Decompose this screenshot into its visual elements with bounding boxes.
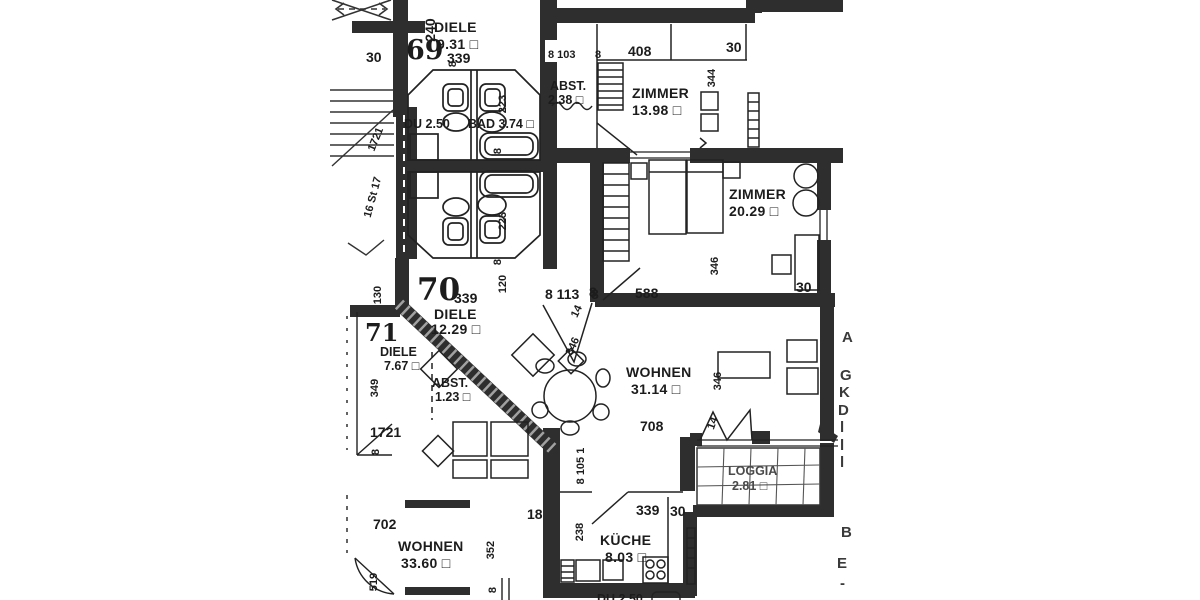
chair-icon <box>593 404 609 420</box>
dim: 519 <box>368 573 380 591</box>
chair-icon <box>422 435 453 466</box>
chair-icon <box>794 164 818 188</box>
edge-fragment: l <box>840 419 844 436</box>
room-area-wohnen70: 31.14 □ <box>631 381 681 397</box>
room-label-abst-top: ABST. <box>550 79 586 93</box>
table-icon <box>453 422 487 456</box>
edge-fragment: B <box>841 524 852 541</box>
sink-icon <box>443 198 469 216</box>
dim: 18 <box>527 506 543 522</box>
table-icon <box>718 352 770 378</box>
chair-icon <box>772 255 791 274</box>
room-label-diele71: DIELE <box>380 345 417 359</box>
room-area-diele71: 7.67 □ <box>384 359 420 373</box>
dim: 346 <box>712 372 724 390</box>
room-label-du69: DU 2.50 <box>404 117 450 131</box>
floorplan-page: DIELE 9.31 □ 69 339 30 240 8 DU 2.50 BAD… <box>0 0 1200 600</box>
dim: 14 <box>705 415 721 431</box>
stool-icon <box>701 92 718 110</box>
dim: 702 <box>373 516 397 532</box>
chair-icon <box>793 190 819 216</box>
dim: 339 <box>636 502 660 518</box>
room-area-diele70: 12.29 □ <box>431 321 481 337</box>
zimmer-20 <box>603 160 819 300</box>
room-label-wohnen70: WOHNEN <box>626 364 692 380</box>
chair-icon <box>453 460 487 478</box>
dim: 30 <box>670 503 686 519</box>
dim: 1721 <box>366 126 386 153</box>
room-label-zimmer2: ZIMMER <box>729 186 786 202</box>
dim: 8 <box>595 49 601 61</box>
dim: 349 <box>369 379 381 397</box>
dim: 8 <box>447 61 459 67</box>
sofa-icon <box>787 368 818 394</box>
elevator-shaft <box>332 0 391 20</box>
door-swing <box>592 492 628 524</box>
room-label-wohnen-lower: WOHNEN <box>398 538 464 554</box>
edge-fragment: E <box>837 555 847 572</box>
wall-openings <box>545 40 831 240</box>
dim: 223 <box>497 212 509 230</box>
edge-fragment: l <box>840 454 844 471</box>
dim: 352 <box>485 541 497 559</box>
edge-fragment: l <box>840 437 844 454</box>
round-table-icon <box>544 370 596 422</box>
dim: 14 <box>569 303 585 320</box>
dim: 8 105 1 <box>575 448 587 485</box>
room-label-kueche: KÜCHE <box>600 532 651 548</box>
chair-icon <box>596 369 610 387</box>
edge-fragment: K <box>839 384 850 401</box>
dim: 223 <box>497 95 509 113</box>
table-icon <box>512 334 554 376</box>
dim: 130 <box>372 286 384 304</box>
staircase <box>330 90 404 255</box>
dim: 408 <box>628 43 652 59</box>
nightstand-icon <box>723 162 740 178</box>
dim: 1721 <box>370 424 401 440</box>
dim: 346 <box>564 336 583 358</box>
chair-icon <box>561 421 579 435</box>
dim: 120 <box>497 275 509 293</box>
edge-fragment: G <box>840 367 852 384</box>
edge-fragment: D <box>838 402 849 419</box>
dim: 30 <box>366 49 382 65</box>
dim: 30 <box>796 279 812 295</box>
unit-number-71: 71 <box>365 318 398 347</box>
edge-fragment: - <box>840 575 845 592</box>
dim: 8 103 <box>548 49 576 61</box>
dim: 8 <box>487 587 499 593</box>
room-area-kueche: 8.03 □ <box>605 549 647 565</box>
toilet-icon <box>443 84 468 111</box>
room-area-abst71: 1.23 □ <box>435 390 471 404</box>
dim: 8 113 <box>545 286 579 302</box>
room-label-zimmer1: ZIMMER <box>632 85 689 101</box>
room-label-abst71: ABST. <box>432 376 468 390</box>
room-area-zimmer2: 20.29 □ <box>729 203 779 219</box>
bathroom-69 <box>408 70 540 160</box>
dim: 588 <box>635 285 659 301</box>
dim: 708 <box>640 418 664 434</box>
bottom-clipped-label: DU 2.50 <box>597 592 643 600</box>
dim: 238 <box>574 523 586 541</box>
room-area-wohnen-lower: 33.60 □ <box>401 555 451 571</box>
bed-icon <box>649 160 686 234</box>
sofa-icon <box>787 340 817 362</box>
room-label-bad69: BAD 3.74 □ <box>468 117 534 131</box>
room-label-diele69: DIELE <box>434 19 477 35</box>
dim: 8 <box>370 449 382 455</box>
dim: 344 <box>706 68 718 87</box>
room-area-abst-top: 2.38 □ <box>548 93 584 107</box>
room-area-loggia: 2.81 □ <box>732 479 768 493</box>
chair-icon <box>491 460 528 478</box>
room-label-loggia: LOGGIA <box>728 464 777 478</box>
chair-icon <box>532 402 548 418</box>
toilet-icon <box>443 218 468 245</box>
dim: 240 <box>422 18 438 42</box>
bathroom-70 <box>408 171 540 258</box>
dim: 346 <box>709 257 721 275</box>
sink-icon <box>576 560 600 581</box>
stool-icon <box>701 114 718 131</box>
nightstand-icon <box>631 163 647 179</box>
dim: 8 <box>492 148 504 154</box>
dim: 30 <box>726 39 742 55</box>
wardrobe-icon <box>603 163 629 261</box>
stair-label: 16 St 17 <box>362 176 384 219</box>
dim: 8 <box>492 259 504 265</box>
room-area-zimmer1: 13.98 □ <box>632 102 682 118</box>
edge-fragment: A <box>842 329 853 346</box>
dim: 339 <box>454 290 478 306</box>
bed-icon <box>687 160 723 233</box>
room-label-diele70: DIELE <box>434 306 477 322</box>
dim: 8 <box>591 286 599 302</box>
floorplan-drawing: DIELE 9.31 □ 69 339 30 240 8 DU 2.50 BAD… <box>0 0 1200 600</box>
